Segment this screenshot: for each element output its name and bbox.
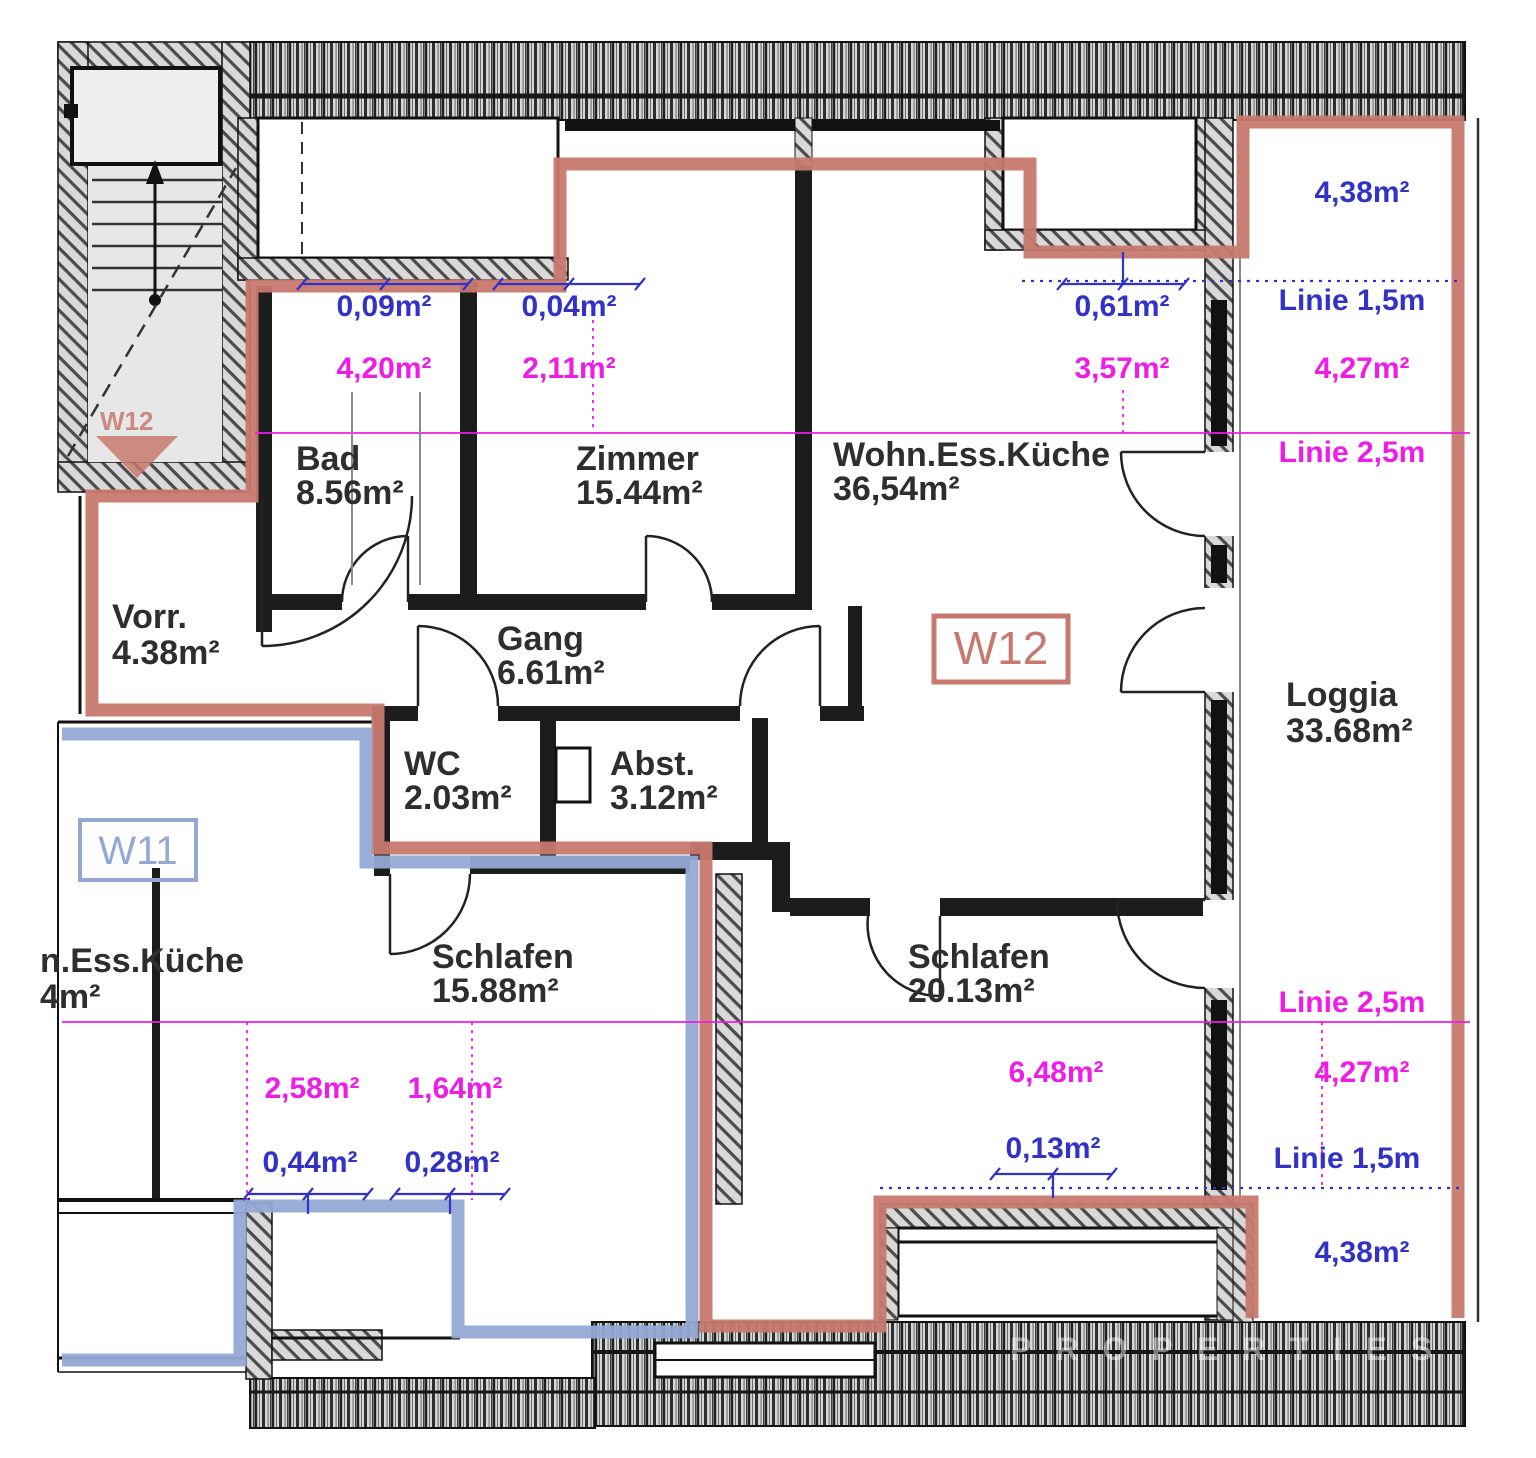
room-label-schlafen-w11: Schlafen <box>432 938 574 976</box>
dim-magenta-zimmer: 2,11m² <box>522 352 615 385</box>
room-label-vorraum: Vorr. <box>112 598 187 636</box>
w12-id-label: W12 <box>954 622 1049 674</box>
dim-magenta-linie25-top: Linie 2,5m <box>1279 436 1426 469</box>
dim-blue-loggia-bottom: 4,38m² <box>1314 1236 1409 1269</box>
room-area-zimmer: 15.44m² <box>576 474 703 512</box>
stairwell <box>58 42 250 492</box>
elevator-shaft <box>72 68 220 164</box>
room-area-loggia: 33.68m² <box>1286 712 1413 750</box>
room-label-abstellraum: Abst. <box>610 745 695 783</box>
dim-blue-loggia-top: 4,38m² <box>1314 176 1409 209</box>
dim-magenta-loggia-top: 4,27m² <box>1314 352 1409 385</box>
room-label-zimmer: Zimmer <box>576 440 699 478</box>
room-label-schlafen-w12: Schlafen <box>908 938 1050 976</box>
dim-blue-wohn-top: 0,61m² <box>1074 290 1169 323</box>
dim-blue-bad-top: 0,09m² <box>336 290 431 323</box>
interior-walls <box>152 166 1212 1204</box>
room-area-wc: 2.03m² <box>404 779 512 817</box>
dim-magenta-wohn: 3,57m² <box>1074 352 1169 385</box>
room-area-schlafen-w11: 15.88m² <box>432 972 559 1010</box>
watermark-text: PROPERTIES <box>1010 1331 1456 1367</box>
dim-labels-blue: 0,09m² 0,04m² 0,61m² 4,38m² Linie 1,5m 0… <box>262 176 1425 1269</box>
floor-plan-canvas: Bad 8.56m² Zimmer 15.44m² Wohn.Ess.Küche… <box>0 0 1536 1458</box>
floor-plan-page: Bad 8.56m² Zimmer 15.44m² Wohn.Ess.Küche… <box>0 0 1536 1458</box>
room-area-bad: 8.56m² <box>296 474 404 512</box>
dim-blue-zimmer-top: 0,04m² <box>521 290 616 323</box>
room-area-schlafen-w12: 20.13m² <box>908 972 1035 1010</box>
room-label-w11-kitchen-partial: n.Ess.Küche <box>40 942 244 980</box>
dim-magenta-bad: 4,20m² <box>336 352 431 385</box>
room-label-wc: WC <box>404 745 461 783</box>
room-area-w11-kitchen-partial: 4m² <box>40 978 100 1016</box>
room-area-gang: 6.61m² <box>497 654 605 692</box>
room-label-gang: Gang <box>497 620 584 658</box>
room-label-bad: Bad <box>296 440 360 478</box>
room-area-vorraum: 4.38m² <box>112 634 220 672</box>
w12-entry-label: W12 <box>100 406 153 436</box>
dim-blue-bottom-left-2: 0,28m² <box>404 1146 499 1179</box>
dim-blue-bottom-mid: 0,13m² <box>1005 1132 1100 1165</box>
dim-blue-linie15-top: Linie 1,5m <box>1279 284 1426 317</box>
room-area-wohnessküche: 36,54m² <box>833 470 960 508</box>
room-area-abstellraum: 3.12m² <box>610 779 718 817</box>
dim-magenta-loggia-bottom: 4,27m² <box>1314 1056 1409 1089</box>
dim-magenta-bottom-left-2: 1,64m² <box>407 1072 502 1105</box>
dim-blue-bottom-left-1: 0,44m² <box>262 1146 357 1179</box>
dim-magenta-bottom-left-1: 2,58m² <box>264 1072 359 1105</box>
dim-magenta-linie25-bottom: Linie 2,5m <box>1279 986 1426 1019</box>
dim-blue-linie15-bottom: Linie 1,5m <box>1274 1142 1421 1175</box>
room-label-loggia: Loggia <box>1286 676 1399 714</box>
w11-id-label: W11 <box>98 829 177 873</box>
room-label-wohnessküche: Wohn.Ess.Küche <box>833 436 1110 474</box>
dim-magenta-bottom-mid: 6,48m² <box>1008 1056 1103 1089</box>
